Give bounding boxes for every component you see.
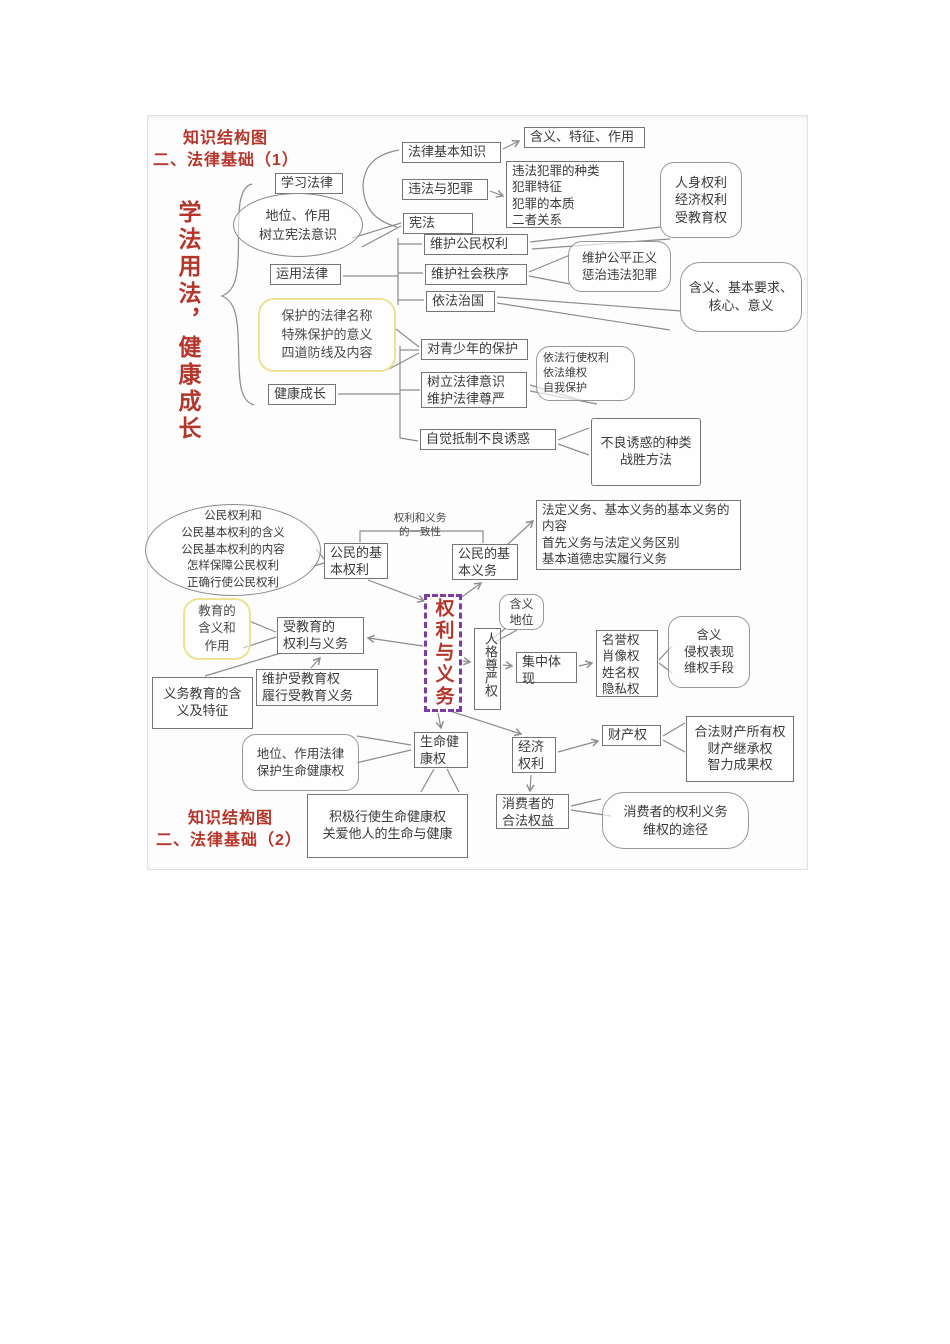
mindmap-page: 知识结构图 二、法律基础（1） 学法用法，健康成长 学习法律 地位、作用 树立宪… bbox=[0, 0, 950, 1344]
node-fairness-bubble: 维护公平正义 惩治违法犯罪 bbox=[568, 241, 671, 292]
node-exercise-life-health: 积极行使生命健康权 关爱他人的生命与健康 bbox=[307, 794, 468, 858]
diagram2-title-line2: 二、法律基础（2） bbox=[156, 826, 302, 850]
node-legal-awareness: 树立法律意识 维护法律尊严 bbox=[421, 372, 527, 408]
node-economic-rights: 经济 权利 bbox=[512, 737, 556, 773]
diagram2-title-line1: 知识结构图 bbox=[188, 804, 273, 828]
node-protect-social-order: 维护社会秩序 bbox=[425, 264, 527, 285]
node-education-right-duty: 受教育的 权利与义务 bbox=[277, 617, 364, 654]
diagram1-title-line2: 二、法律基础（1） bbox=[153, 146, 299, 170]
node-personal-dignity: 人格尊严权 bbox=[474, 628, 501, 710]
node-law-protect-life-bubble: 地位、作用法律 保护生命健康权 bbox=[242, 734, 359, 791]
node-crime-details: 违法犯罪的种类 犯罪特征 犯罪的本质 二者关系 bbox=[506, 161, 624, 228]
node-property-right: 财产权 bbox=[602, 725, 661, 746]
node-use-law: 运用法律 bbox=[270, 264, 341, 285]
node-legal-duties-detail: 法定义务、基本义务的基本义务的 内容 首先义务与法定义务区别 基本道德忠实履行义… bbox=[536, 500, 741, 570]
node-civil-rights-oval: 公民权利和 公民基本权利的含义 公民基本权利的内容 怎样保障公民权利 正确行使公… bbox=[145, 504, 321, 596]
node-meaning-core-bubble: 含义、基本要求、 核心、意义 bbox=[680, 262, 802, 332]
node-basic-legal-knowledge: 法律基本知识 bbox=[402, 142, 501, 163]
node-infringement-bubble: 含义 侵权表现 维权手段 bbox=[668, 616, 750, 688]
label-rights-duties-consistency: 权利和义务 的一致性 bbox=[391, 512, 449, 539]
node-youth-protection: 对青少年的保护 bbox=[421, 339, 528, 360]
node-life-health-right: 生命健 康权 bbox=[414, 732, 468, 768]
node-education-meaning-bubble: 教育的 含义和 作用 bbox=[183, 598, 251, 660]
node-safeguard-education: 维护受教育权 履行受教育义务 bbox=[256, 669, 378, 706]
node-concentrated-embodiment: 集中体 现 bbox=[516, 652, 577, 683]
node-temptation-detail: 不良诱惑的种类 战胜方法 bbox=[591, 418, 701, 486]
node-compulsory-education: 义务教育的含 义及特征 bbox=[152, 677, 253, 729]
node-resist-temptation: 自觉抵制不良诱惑 bbox=[420, 429, 556, 450]
diagram1-title-line1: 知识结构图 bbox=[183, 124, 268, 148]
node-exercise-rights-bubble: 依法行使权利 依法维权 自我保护 bbox=[536, 346, 635, 401]
node-meaning-feature-role: 含义、特征、作用 bbox=[524, 127, 645, 148]
node-protection-note: 保护的法律名称 特殊保护的意义 四道防线及内容 bbox=[258, 298, 396, 372]
node-personal-rights-bubble: 人身权利 经济权利 受教育权 bbox=[660, 162, 742, 238]
node-reputation-rights-list: 名誉权 肖像权 姓名权 隐私权 bbox=[596, 630, 658, 697]
node-consumer-detail-bubble: 消费者的权利义务 维权的途径 bbox=[602, 792, 749, 849]
node-constitution-role-oval: 地位、作用 树立宪法意识 bbox=[233, 193, 363, 257]
node-basic-rights: 公民的基 本权利 bbox=[324, 543, 388, 579]
diagram1-root-label: 学法用法，健康成长 bbox=[176, 200, 199, 460]
node-illegal-and-crime: 违法与犯罪 bbox=[402, 179, 488, 200]
node-study-law: 学习法律 bbox=[275, 173, 343, 194]
node-healthy-growth: 健康成长 bbox=[268, 384, 336, 405]
node-meaning-status-bubble: 含义 地位 bbox=[499, 594, 544, 630]
node-constitution: 宪法 bbox=[403, 213, 473, 234]
node-property-detail: 合法财产所有权 财产继承权 智力成果权 bbox=[686, 716, 794, 782]
node-basic-duties: 公民的基 本义务 bbox=[452, 544, 518, 580]
node-rule-of-law: 依法治国 bbox=[426, 291, 495, 312]
node-consumer-rights: 消费者的 合法权益 bbox=[496, 794, 569, 829]
node-rights-and-duties-center: 权利与义务 bbox=[424, 594, 462, 712]
node-protect-citizen-rights: 维护公民权利 bbox=[424, 234, 528, 255]
